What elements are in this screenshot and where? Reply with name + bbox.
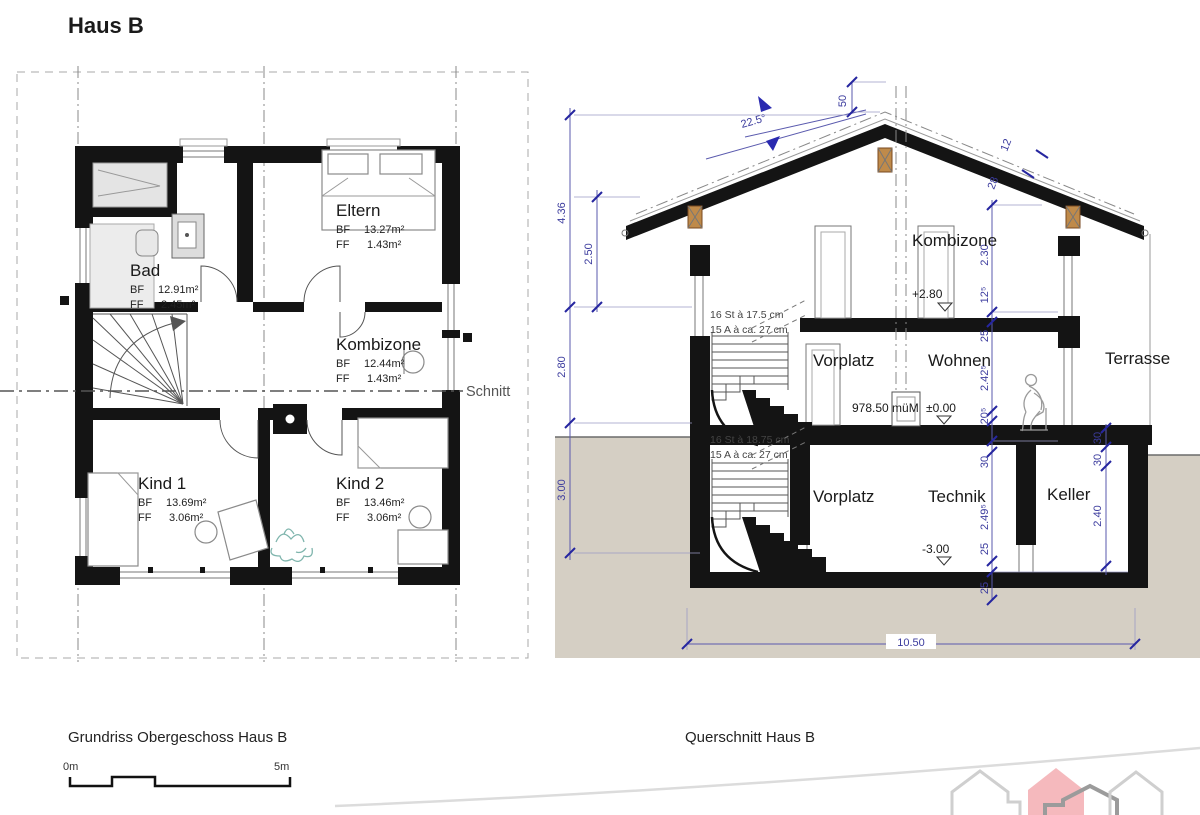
- room-label-bad: Bad: [130, 261, 160, 280]
- label-vorplatz-eg: Vorplatz: [813, 351, 874, 370]
- label-wohnen: Wohnen: [928, 351, 991, 370]
- svg-text:FF: FF: [336, 239, 350, 251]
- eltern-door: [304, 266, 340, 302]
- svg-text:BF: BF: [336, 358, 350, 370]
- svg-text:12⁵: 12⁵: [979, 287, 991, 304]
- label-keller: Keller: [1047, 485, 1091, 504]
- purlin-right: [1066, 206, 1080, 228]
- page-title: Haus B: [68, 13, 144, 38]
- svg-text:13.46m²: 13.46m²: [364, 497, 405, 509]
- svg-text:BF: BF: [130, 284, 144, 296]
- label-kombizone: Kombizone: [912, 231, 997, 250]
- svg-text:13.27m²: 13.27m²: [364, 224, 405, 236]
- svg-text:25: 25: [979, 543, 991, 555]
- kind2-door: [307, 420, 342, 455]
- desk-kind1: [195, 500, 268, 560]
- slope-arrow-2: [766, 136, 780, 151]
- svg-text:4.36: 4.36: [556, 202, 568, 223]
- svg-text:FF: FF: [138, 512, 152, 524]
- svg-text:2.45m²: 2.45m²: [161, 299, 196, 311]
- room-label-kind2: Kind 2: [336, 474, 384, 493]
- level-og: +2.80: [912, 287, 943, 301]
- toilet: [136, 230, 158, 256]
- section-caption: Querschnitt Haus B: [685, 729, 815, 746]
- svg-text:3.06m²: 3.06m²: [169, 512, 204, 524]
- purlin-left: [688, 206, 702, 228]
- svg-text:BF: BF: [336, 224, 350, 236]
- ug-divider-1: [790, 445, 810, 545]
- scale-bar: 0m 5m: [63, 761, 290, 786]
- floor-plan: Schnitt Bad BF12.91m² FF2.45m² Eltern BF…: [0, 66, 528, 662]
- stair-arrow: [170, 316, 186, 331]
- level-datum: 978.50 müM: [852, 401, 919, 415]
- plan-stair: [93, 314, 187, 406]
- svg-text:1.43m²: 1.43m²: [367, 239, 402, 251]
- stair-note-upper-1: 16 St à 17.5 cm: [710, 309, 784, 321]
- svg-text:10.50: 10.50: [897, 637, 925, 649]
- label-vorplatz-ug: Vorplatz: [813, 487, 874, 506]
- scale-start: 0m: [63, 761, 78, 773]
- room-label-kombizone: Kombizone: [336, 335, 421, 354]
- svg-text:25: 25: [979, 582, 991, 594]
- ug-divider-2: [1016, 445, 1036, 545]
- axis-marker: [60, 296, 69, 305]
- ridge-purlin: [878, 148, 892, 172]
- slope-arrow-1: [758, 96, 772, 112]
- room-label-kind1: Kind 1: [138, 474, 186, 493]
- svg-text:30: 30: [979, 456, 991, 468]
- roof-dim-12: 12: [999, 137, 1015, 153]
- kombizone-door: [340, 312, 365, 337]
- og-slab: [800, 318, 1080, 332]
- footer: Grundriss Obergeschoss Haus B Querschnit…: [63, 729, 1200, 815]
- svg-text:30: 30: [1092, 432, 1104, 444]
- stair-note-lower-1: 16 St à 18.75 cm: [710, 434, 790, 446]
- bed-kind1: [88, 473, 138, 566]
- label-terrasse: Terrasse: [1105, 349, 1170, 368]
- svg-text:2.80: 2.80: [556, 356, 568, 377]
- cross-section: 22.5° 50 12 28 4.36 2.80 3.00 2.50: [555, 77, 1200, 658]
- scale-end: 5m: [274, 761, 289, 773]
- foundation-slab: [690, 572, 1148, 588]
- shaft-pipe: [286, 415, 295, 424]
- label-technik: Technik: [928, 487, 986, 506]
- svg-text:FF: FF: [336, 373, 350, 385]
- drawing-canvas: Haus B: [0, 0, 1200, 815]
- svg-text:BF: BF: [336, 497, 350, 509]
- keller-right-wall: [1128, 443, 1148, 575]
- kind1-door: [220, 420, 258, 458]
- svg-text:FF: FF: [130, 299, 144, 311]
- room-label-eltern: Eltern: [336, 201, 380, 220]
- svg-text:1.43m²: 1.43m²: [367, 373, 402, 385]
- plant-kind2: [271, 529, 312, 561]
- svg-text:3.00: 3.00: [556, 479, 568, 500]
- stair-note-upper-2: 15 A à ca. 27 cm: [710, 324, 788, 336]
- svg-text:2.40: 2.40: [1092, 505, 1104, 526]
- svg-text:2.50: 2.50: [583, 243, 595, 264]
- section-cut-label: Schnitt: [466, 384, 510, 400]
- level-zero: ±0.00: [926, 401, 956, 415]
- ridge-dim: 50: [837, 95, 849, 107]
- architectural-sheet: Haus B: [0, 0, 1200, 815]
- axis-marker: [463, 333, 472, 342]
- svg-text:FF: FF: [336, 512, 350, 524]
- logo-houses: [952, 768, 1162, 815]
- svg-text:20⁵: 20⁵: [979, 408, 991, 425]
- svg-text:12.91m²: 12.91m²: [158, 284, 199, 296]
- svg-text:12.44m²: 12.44m²: [364, 358, 405, 370]
- stair-note-lower-2: 15 A à ca. 27 cm: [710, 449, 788, 461]
- svg-text:2.49⁵: 2.49⁵: [979, 504, 991, 530]
- plan-caption: Grundriss Obergeschoss Haus B: [68, 729, 287, 746]
- level-ug: -3.00: [922, 542, 950, 556]
- svg-text:BF: BF: [138, 497, 152, 509]
- svg-text:3.06m²: 3.06m²: [367, 512, 402, 524]
- bed-kind2: [358, 418, 448, 468]
- svg-text:13.69m²: 13.69m²: [166, 497, 207, 509]
- bad-door: [201, 266, 237, 302]
- svg-text:25: 25: [979, 330, 991, 342]
- desk-kind2: [398, 506, 448, 564]
- svg-text:30: 30: [1092, 454, 1104, 466]
- og-door-1: [815, 226, 851, 318]
